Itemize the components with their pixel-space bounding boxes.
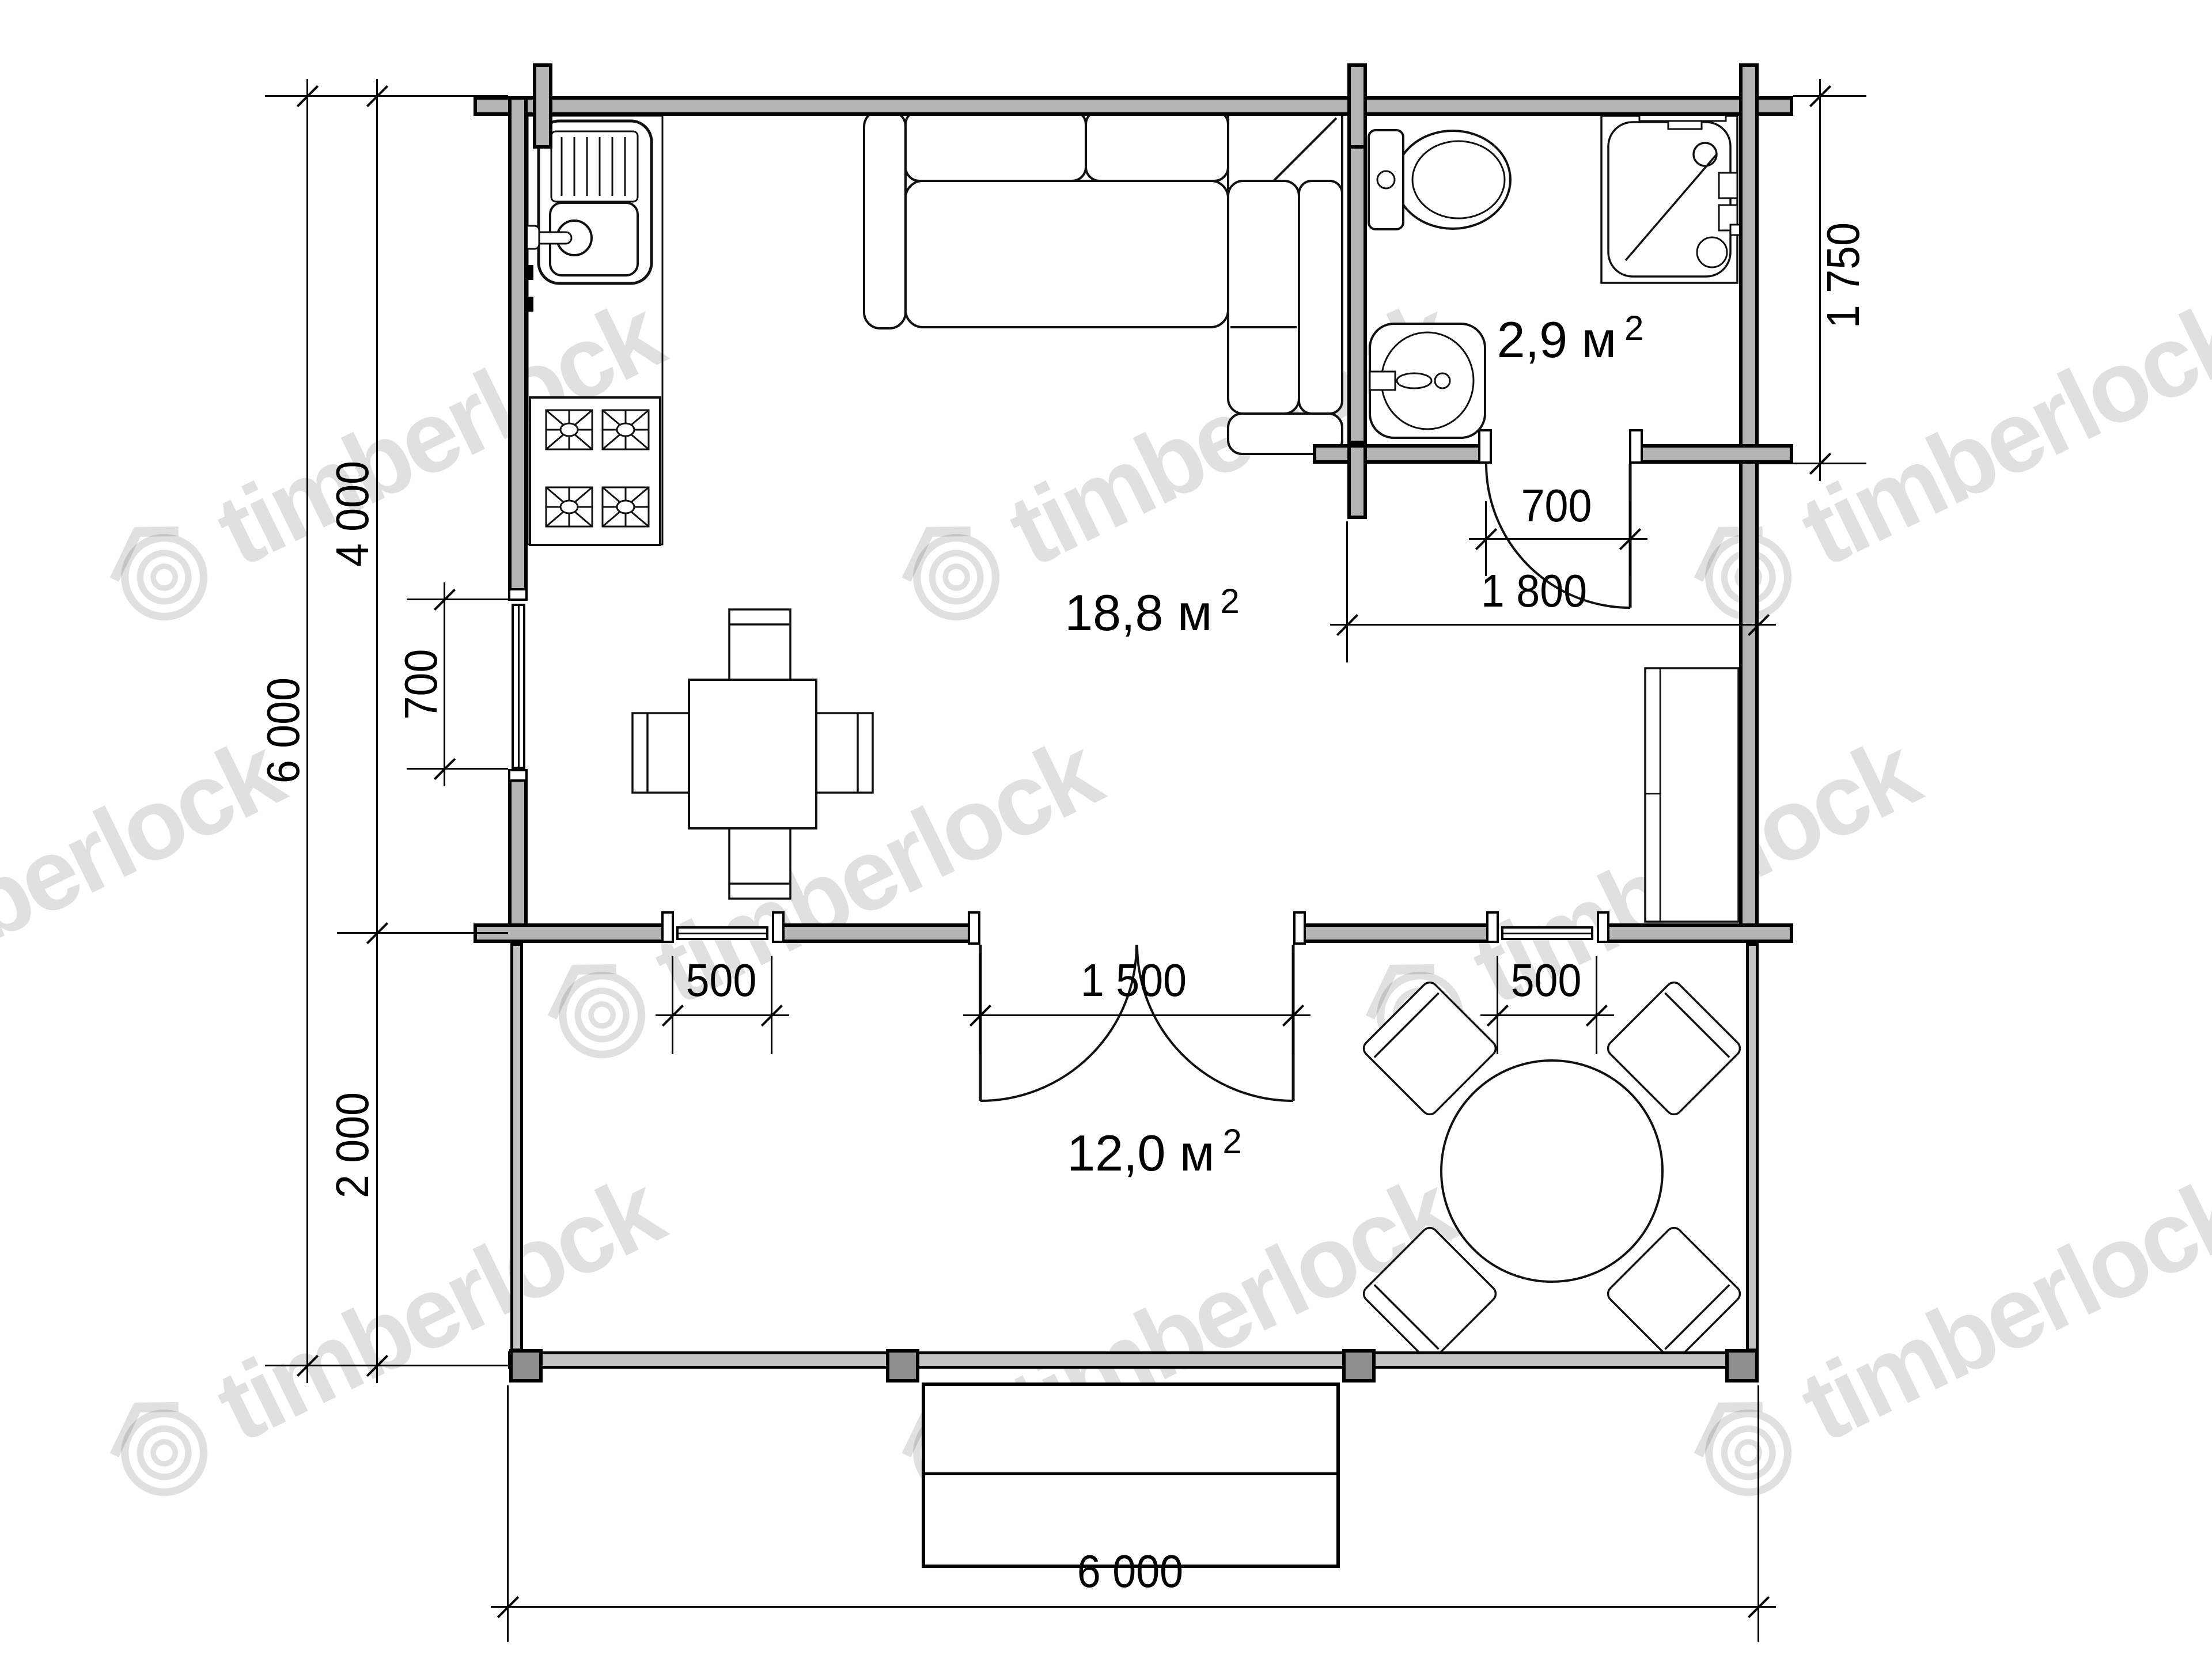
- log-joint-mark: [525, 297, 533, 312]
- door-jamb: [1293, 911, 1306, 945]
- window-jamb: [508, 769, 528, 782]
- dining-set: [632, 609, 873, 899]
- terrace-post: [509, 1349, 543, 1382]
- corner-sofa: [864, 111, 1342, 454]
- dim-label-4000: 4 000: [326, 461, 379, 567]
- wall-bathroom-bottom-right: [1630, 444, 1793, 464]
- wall-right: [1739, 63, 1759, 943]
- wall-left-lower: [508, 769, 528, 943]
- living-area-sup: 2: [1220, 582, 1239, 620]
- dim-label-1500: 1 500: [1081, 954, 1187, 1007]
- wall-middle-c: [1293, 923, 1498, 943]
- dim-label-1750: 1 750: [1817, 222, 1870, 328]
- terrace-wall-bottom: [508, 1351, 1759, 1369]
- dim-line-1800: [1330, 624, 1776, 626]
- dim-label-700-door: 700: [1521, 479, 1592, 532]
- wardrobe: [1645, 668, 1738, 922]
- shower: [1601, 109, 1745, 283]
- terrace-wall-left: [510, 943, 523, 1351]
- wall-top: [474, 96, 1793, 116]
- log-end-partition-bottom: [1347, 444, 1367, 519]
- room-label-terrace: 12,0 м2: [1067, 1122, 1242, 1183]
- log-joint-mark: [525, 265, 533, 280]
- door-jamb: [968, 911, 980, 945]
- dim-label-2000: 2 000: [326, 1092, 379, 1198]
- round-table: [1441, 1060, 1662, 1282]
- wall-bathroom-bottom-left: [1313, 444, 1486, 464]
- washbasin: [1370, 324, 1485, 438]
- wall-middle-d: [1597, 923, 1793, 943]
- terrace-post: [1342, 1349, 1376, 1382]
- floor-plan-canvas: timberlock timberlock timberlock timberl…: [0, 0, 2212, 1659]
- dim-label-bottom-6000: 6 000: [1077, 1545, 1183, 1598]
- log-end-top-left: [533, 63, 552, 149]
- dim-label-500-left: 500: [686, 954, 757, 1007]
- door-jamb: [1629, 429, 1643, 464]
- window-jamb: [772, 911, 785, 943]
- window-jamb: [661, 911, 674, 943]
- terrace-area-value: 12,0 м: [1067, 1124, 1214, 1181]
- dim-label-500-right: 500: [1511, 954, 1582, 1007]
- terrace-area-sup: 2: [1222, 1122, 1241, 1161]
- wall-bathroom-partition: [1347, 116, 1367, 444]
- dining-table: [689, 680, 816, 828]
- window-jamb: [1597, 911, 1609, 943]
- log-end-partition-top: [1347, 63, 1367, 149]
- terrace-dining-set: [1361, 979, 1743, 1363]
- bathroom-area-value: 2,9 м: [1497, 311, 1616, 368]
- dim-label-left-6000: 6 000: [257, 677, 310, 783]
- door-jamb: [1478, 429, 1492, 464]
- window-jamb: [508, 588, 528, 601]
- room-label-living: 18,8 м2: [1065, 581, 1240, 642]
- dim-line-bottom-6000: [491, 1606, 1776, 1608]
- bathroom-area-sup: 2: [1624, 309, 1643, 347]
- dim-label-1800: 1 800: [1481, 565, 1587, 618]
- wall-middle-b: [772, 923, 980, 943]
- terrace-post: [1725, 1349, 1759, 1382]
- step-divider: [925, 1472, 1336, 1475]
- window-jamb: [1486, 911, 1499, 943]
- dim-label-700-window: 700: [395, 649, 448, 720]
- terrace-post: [886, 1349, 919, 1382]
- wall-left-upper: [508, 96, 528, 600]
- terrace-wall-right: [1746, 943, 1759, 1351]
- dim-line-1500: [963, 1014, 1310, 1016]
- dim-line-700-door: [1469, 538, 1647, 540]
- toilet: [1369, 130, 1510, 229]
- living-area-value: 18,8 м: [1065, 584, 1212, 641]
- terrace-steps: [922, 1382, 1340, 1568]
- room-label-bathroom: 2,9 м2: [1497, 308, 1644, 369]
